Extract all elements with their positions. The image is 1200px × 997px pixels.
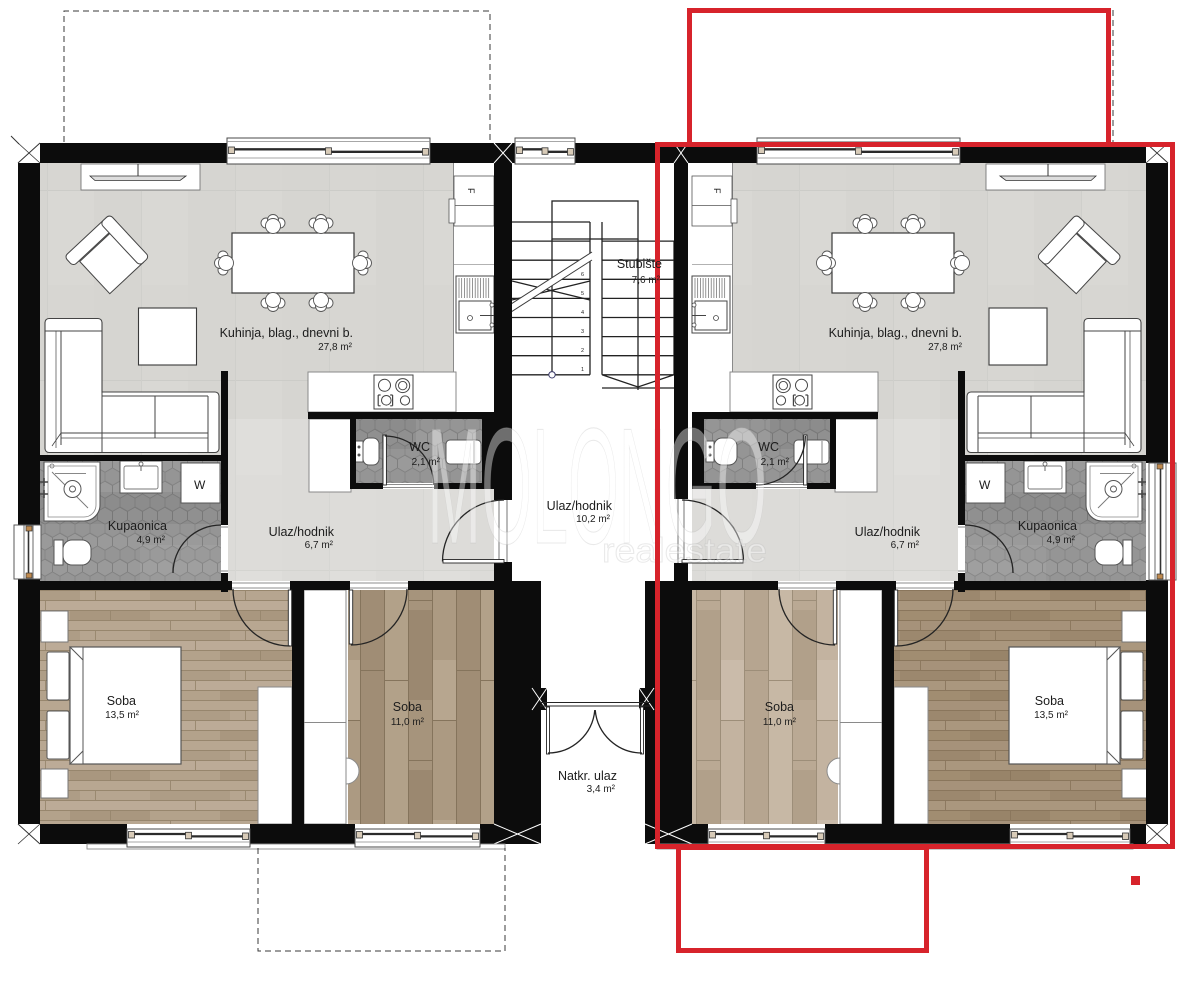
- svg-text:Kupaonica: Kupaonica: [108, 519, 167, 533]
- svg-text:13,5 m²: 13,5 m²: [1034, 710, 1069, 721]
- svg-text:4,9 m²: 4,9 m²: [1047, 535, 1076, 546]
- svg-text:2,1 m²: 2,1 m²: [761, 457, 790, 468]
- svg-text:F: F: [466, 188, 476, 194]
- svg-text:6,7 m²: 6,7 m²: [305, 540, 334, 551]
- svg-text:6: 6: [581, 272, 584, 278]
- svg-text:W: W: [194, 478, 206, 492]
- svg-text:Kuhinja, blag., dnevni b.: Kuhinja, blag., dnevni b.: [220, 326, 353, 340]
- svg-text:3: 3: [581, 329, 584, 335]
- svg-text:27,8 m²: 27,8 m²: [318, 342, 353, 353]
- svg-text:W: W: [979, 478, 991, 492]
- svg-text:6,7 m²: 6,7 m²: [891, 540, 920, 551]
- svg-text:11,0 m²: 11,0 m²: [763, 717, 797, 728]
- svg-text:3,4 m²: 3,4 m²: [587, 784, 616, 795]
- svg-text:Soba: Soba: [393, 700, 422, 714]
- svg-text:Kuhinja, blag., dnevni b.: Kuhinja, blag., dnevni b.: [829, 326, 962, 340]
- svg-text:WC: WC: [758, 440, 779, 454]
- svg-text:2: 2: [581, 348, 584, 354]
- svg-text:Kupaonica: Kupaonica: [1018, 519, 1077, 533]
- svg-text:4: 4: [581, 310, 584, 316]
- svg-text:Ulaz/hodnik: Ulaz/hodnik: [855, 525, 921, 539]
- svg-text:4,9 m²: 4,9 m²: [137, 535, 166, 546]
- svg-text:realestate: realestate: [602, 532, 767, 570]
- svg-text:F: F: [712, 188, 722, 194]
- svg-text:Ulaz/hodnik: Ulaz/hodnik: [547, 499, 613, 513]
- svg-text:10,2 m²: 10,2 m²: [576, 514, 611, 525]
- svg-text:13,5 m²: 13,5 m²: [105, 710, 140, 721]
- svg-text:Soba: Soba: [765, 700, 794, 714]
- svg-text:11,0 m²: 11,0 m²: [391, 717, 425, 728]
- svg-text:Soba: Soba: [1035, 694, 1064, 708]
- svg-text:Ulaz/hodnik: Ulaz/hodnik: [269, 525, 335, 539]
- svg-text:7,6 m²: 7,6 m²: [632, 275, 661, 286]
- svg-text:5: 5: [581, 291, 584, 297]
- svg-text:Soba: Soba: [107, 694, 136, 708]
- svg-text:Stubište: Stubište: [617, 257, 662, 271]
- svg-text:WC: WC: [409, 440, 430, 454]
- svg-text:2,1 m²: 2,1 m²: [412, 457, 441, 468]
- svg-text:27,8 m²: 27,8 m²: [928, 342, 963, 353]
- svg-text:Natkr. ulaz: Natkr. ulaz: [558, 769, 617, 783]
- svg-text:1: 1: [581, 367, 584, 373]
